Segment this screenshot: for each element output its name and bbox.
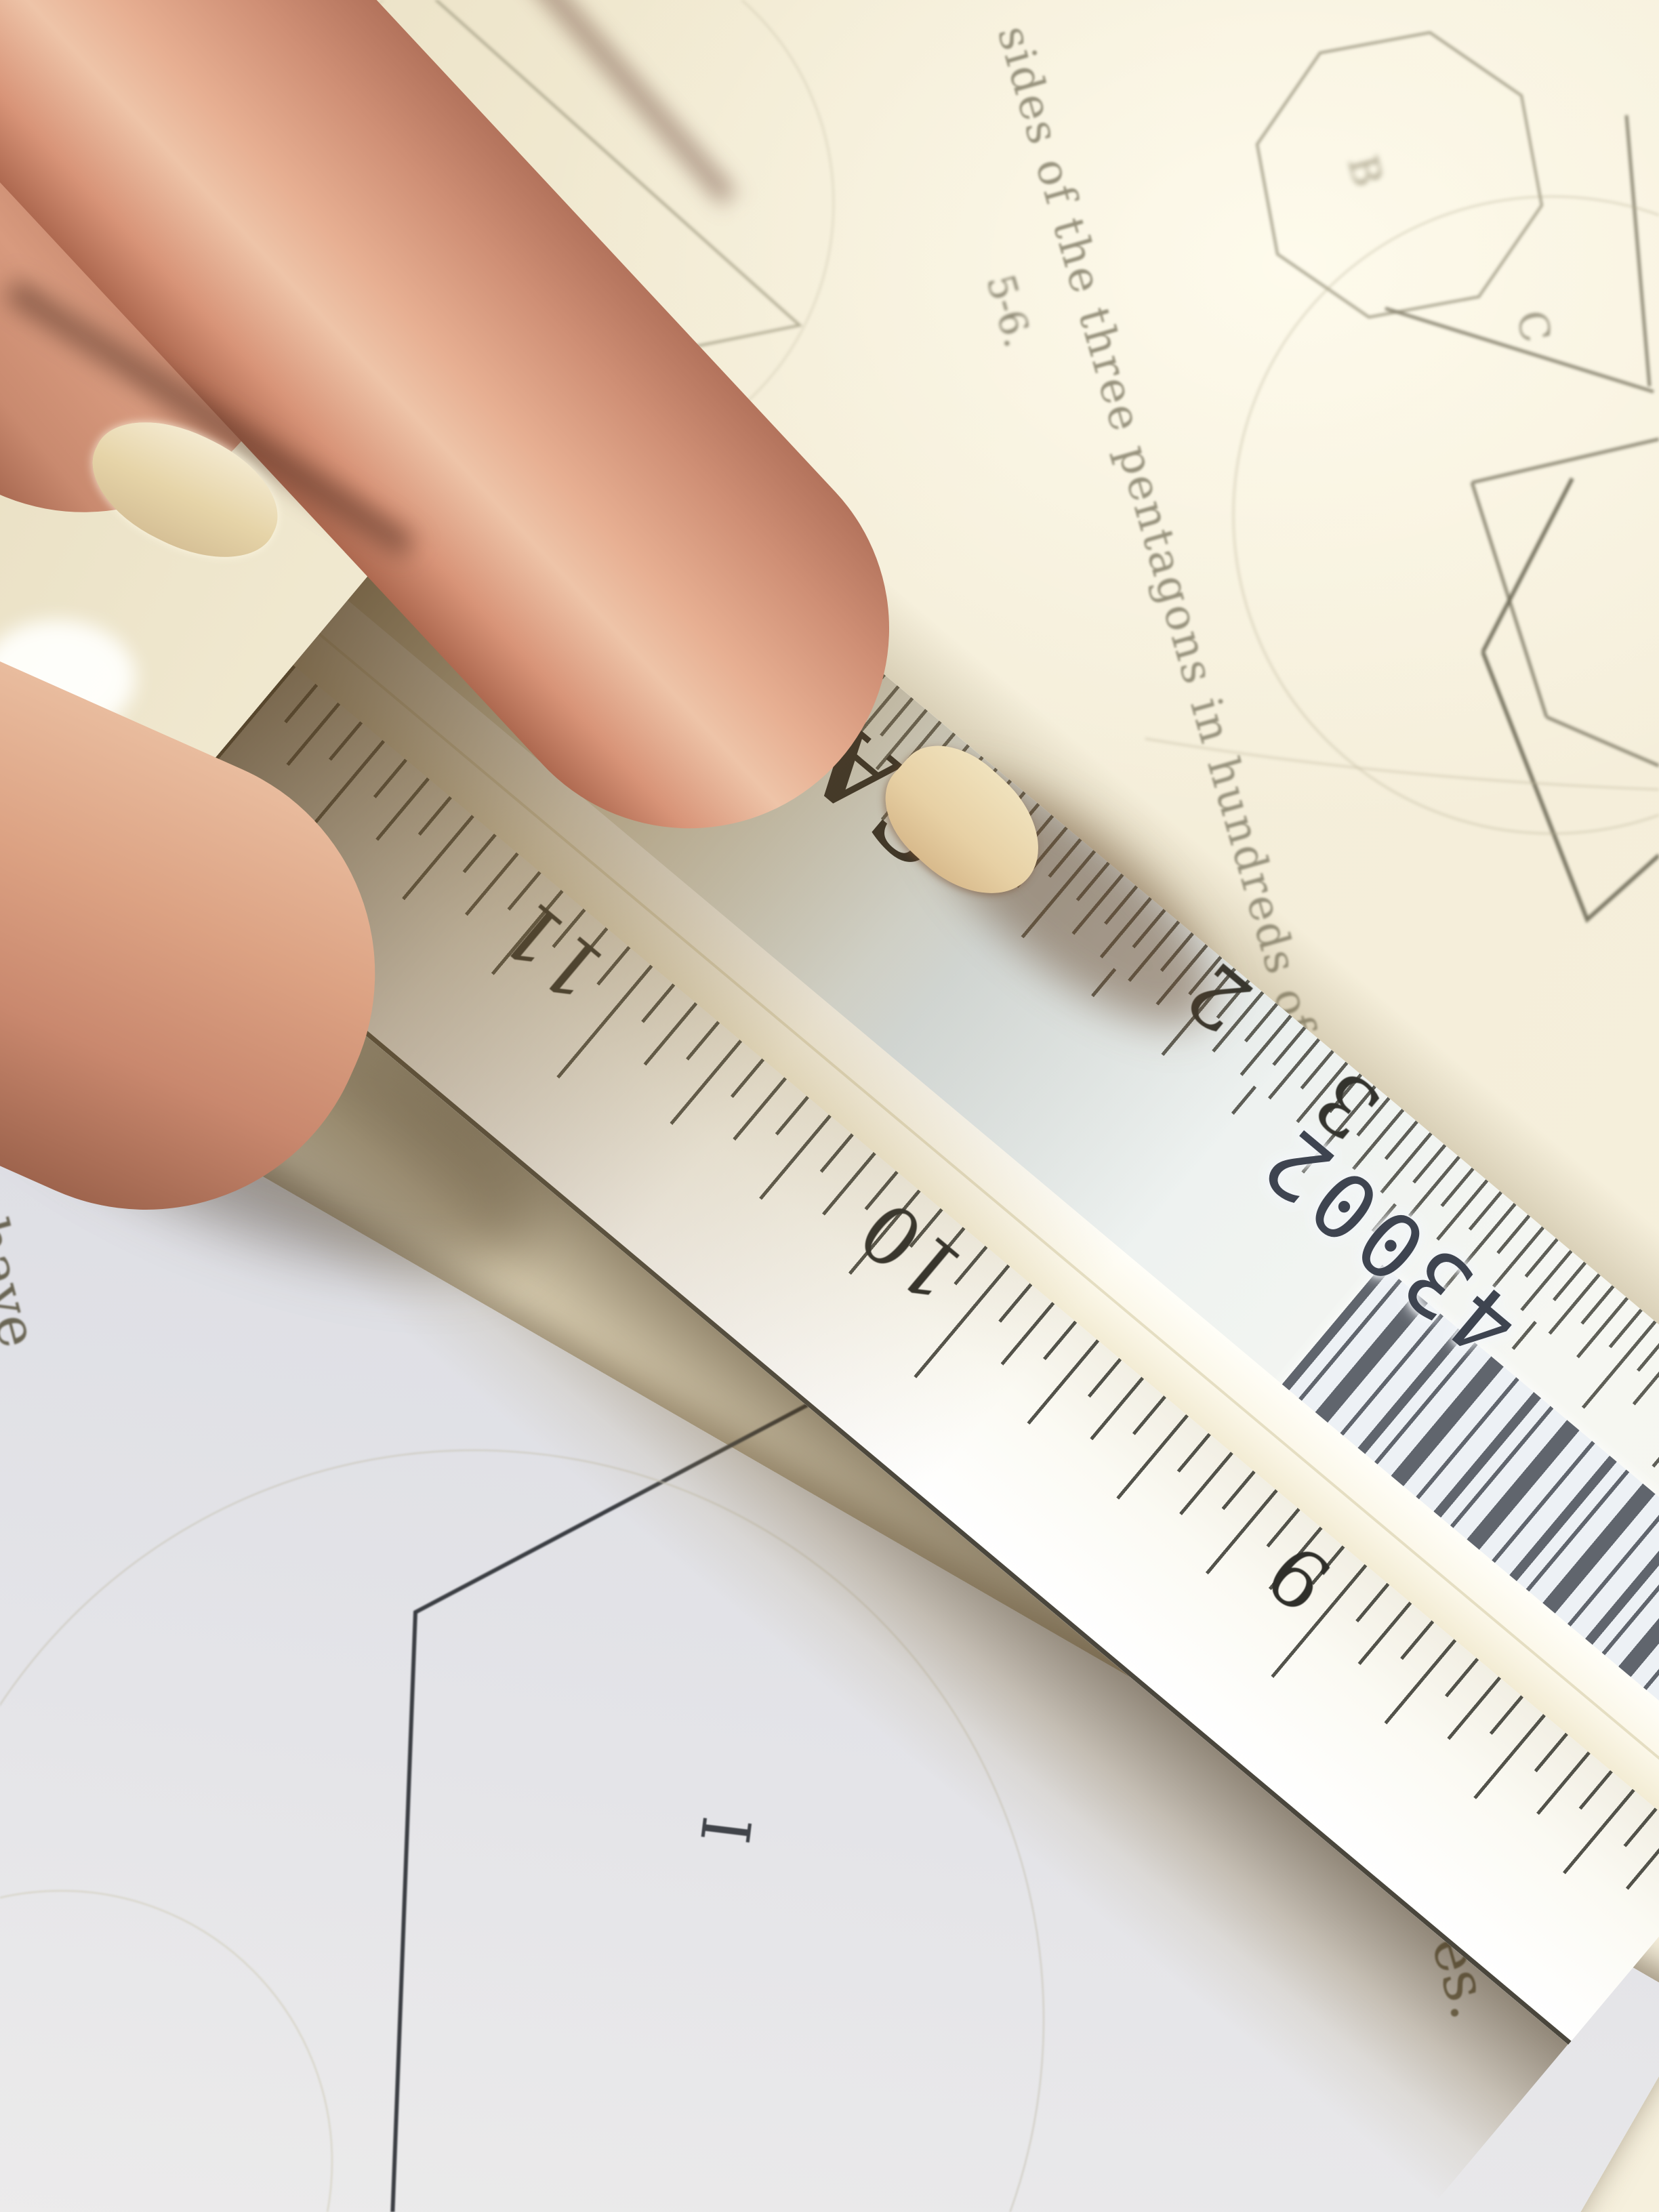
- photo-scene: sides of the three pentagons in hundreds…: [0, 0, 1659, 2212]
- guide-arc-corner: [0, 1891, 332, 2212]
